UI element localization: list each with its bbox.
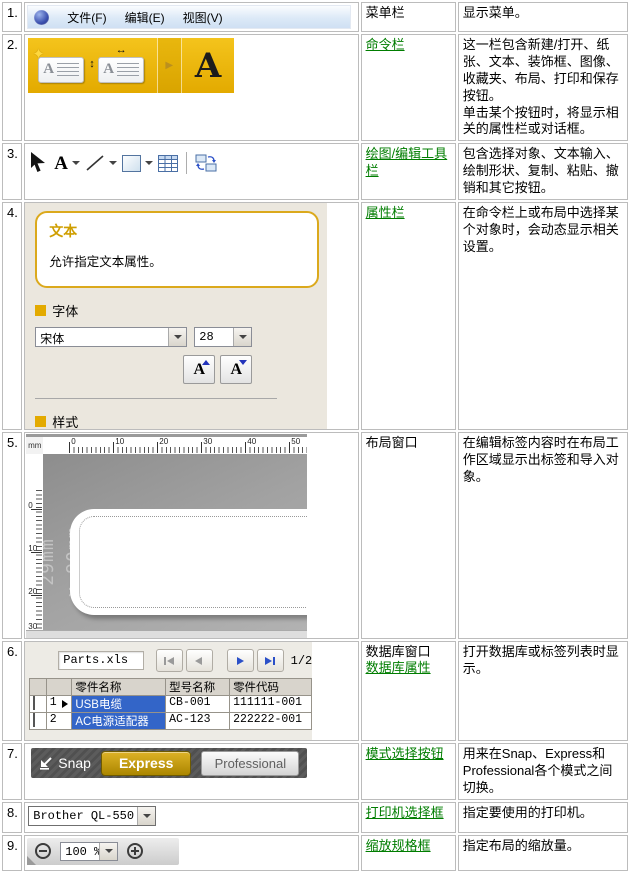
menu-file[interactable]: 文件(F) <box>67 9 106 26</box>
table-row: 8. Brother QL-550 打印机选择框 指定要使用的打印机。 <box>2 802 628 833</box>
style-section-label: 样式 <box>52 412 78 430</box>
record-row: 2 AC电源适配器 AC-123 222222-001 <box>30 713 312 730</box>
resize-grip-icon <box>27 856 36 865</box>
item-desc: 单击某个按钮时，将显示相关的属性栏或对话框。 <box>463 105 623 139</box>
line-tool-button[interactable] <box>85 154 117 172</box>
snap-mode-button[interactable]: Snap <box>39 755 91 771</box>
dropdown-arrow-icon <box>72 161 80 165</box>
table-row: 3. A <box>2 143 628 200</box>
dropdown-button[interactable] <box>233 328 251 346</box>
first-record-button[interactable] <box>156 649 183 672</box>
draw-edit-toolbar: A <box>27 148 355 178</box>
height-arrow-icon: ↕ <box>89 59 95 70</box>
scrollbar-strip[interactable] <box>26 630 307 638</box>
dropdown-arrow-icon <box>174 335 182 339</box>
professional-mode-button[interactable]: Professional <box>201 751 299 776</box>
column-header[interactable]: 型号名称 <box>166 679 230 696</box>
text-button[interactable]: A <box>182 38 234 93</box>
last-record-button[interactable] <box>257 649 284 672</box>
item-desc: 用来在Snap、Express和Professional各个模式之间切换。 <box>463 746 623 797</box>
record-model-cell[interactable]: AC-123 <box>166 713 230 730</box>
item-desc: 打开数据库或标签列表时显示。 <box>463 644 623 678</box>
zoom-in-button[interactable] <box>127 843 143 859</box>
width-arrow-icon: ↔ <box>100 45 142 56</box>
record-name-cell[interactable]: USB电缆 <box>72 696 166 713</box>
menu-view[interactable]: 视图(V) <box>183 9 223 26</box>
row-number: 1. <box>3 3 21 22</box>
table-icon <box>158 155 178 172</box>
print-margin-guide <box>79 516 307 608</box>
ruler-unit-box: mm <box>26 437 44 455</box>
down-triangle-icon <box>239 360 247 365</box>
current-record-icon <box>62 700 68 708</box>
item-desc: 显示菜单。 <box>463 5 623 22</box>
table-row: 9. 100 % 缩放规格框 指定布局的缩放量。 <box>2 835 628 871</box>
cursor-icon <box>27 151 49 175</box>
row-number: 2. <box>3 35 21 54</box>
express-mode-button[interactable]: Express <box>101 751 191 776</box>
record-code-cell[interactable]: 111111-001 <box>230 696 312 713</box>
table-row: 4. 文本 允许指定文本属性。 字体 宋体 28 <box>2 202 628 430</box>
table-tool-button[interactable] <box>158 155 178 172</box>
table-row: 7. Snap Express Professional 模式选择按钮 用来在S… <box>2 743 628 800</box>
item-desc: 指定布局的缩放量。 <box>463 838 623 855</box>
snap-arrow-icon <box>39 757 53 770</box>
decrease-font-button[interactable]: A <box>220 355 252 384</box>
next-record-icon <box>235 656 245 666</box>
row-number: 9. <box>3 836 21 855</box>
font-section-label: 字体 <box>52 301 78 320</box>
manual-table: 1. 文件(F) 编辑(E) 视图(V) 菜单栏 显示菜单。 2. A ✦ A … <box>0 0 630 873</box>
row-number: 5. <box>3 433 21 452</box>
property-panel: 文本 允许指定文本属性。 字体 宋体 28 A <box>25 203 327 429</box>
item-name-layoutwindow: 布局窗口 <box>366 435 418 450</box>
up-triangle-icon <box>202 360 210 365</box>
item-desc: 在命令栏上或布局中选择某个对象时，会动态显示相关设置。 <box>463 205 623 256</box>
record-checkbox[interactable] <box>33 696 35 711</box>
item-name-menubar: 菜单栏 <box>366 5 405 20</box>
select-tool-button[interactable] <box>27 151 49 175</box>
arrange-tool-button[interactable] <box>195 153 217 173</box>
record-name-cell[interactable]: AC电源适配器 <box>72 713 166 730</box>
item-desc: 在编辑标签内容时在布局工作区域显示出标签和导入对象。 <box>463 435 623 486</box>
new-document-button[interactable]: A ✦ <box>36 51 86 81</box>
row-number: 6. <box>3 642 21 661</box>
dropdown-arrow-icon <box>239 335 247 339</box>
font-size-select[interactable]: 28 <box>194 327 252 347</box>
section-bullet-icon <box>35 416 46 427</box>
table-row: 2. A ✦ A ↔ ↕ ▶ A 命令栏 <box>2 34 628 141</box>
section-divider <box>35 398 277 399</box>
zoom-level-select[interactable]: 100 % <box>60 842 118 861</box>
arrange-icon <box>195 153 217 173</box>
shape-tool-button[interactable] <box>122 155 153 172</box>
item-link-printerselect[interactable]: 打印机选择框 <box>366 805 444 820</box>
item-link-drawtoolbar[interactable]: 绘图/编辑工具栏 <box>366 146 448 177</box>
paper-size-button[interactable]: A ↔ ↕ <box>96 51 146 81</box>
text-tool-button[interactable]: A <box>54 154 80 173</box>
item-link-databaseproperty[interactable]: 数据库属性 <box>366 660 431 675</box>
dropdown-button[interactable] <box>99 843 117 860</box>
dropdown-arrow-icon <box>145 161 153 165</box>
tooltip-title: 文本 <box>49 221 305 241</box>
menu-bar: 文件(F) 编辑(E) 视图(V) <box>27 5 351 29</box>
item-desc: 包含选择对象、文本输入、绘制形状、复制、粘贴、撤销和其它按钮。 <box>463 146 623 197</box>
layout-canvas[interactable]: 29mm x 90mm <box>43 454 307 631</box>
rectangle-icon <box>122 155 141 172</box>
previous-record-icon <box>194 656 204 666</box>
font-name-select[interactable]: 宋体 <box>35 327 187 347</box>
menu-edit[interactable]: 编辑(E) <box>125 9 165 26</box>
increase-font-button[interactable]: A <box>183 355 215 384</box>
column-header[interactable]: 零件代码 <box>230 679 312 696</box>
text-property-tooltip: 文本 允许指定文本属性。 <box>35 211 319 288</box>
database-grid: 零件名称 型号名称 零件代码 1 USB电缆 CB-001 111111-001… <box>29 678 312 730</box>
mode-switcher: Snap Express Professional <box>31 748 307 778</box>
first-record-icon <box>163 656 175 666</box>
vertical-ruler: 0 10 20 30 <box>26 454 44 631</box>
row-number: 3. <box>3 144 21 163</box>
record-code-cell[interactable]: 222222-001 <box>230 713 312 730</box>
dropdown-button[interactable] <box>137 807 155 825</box>
row-number: 7. <box>3 744 21 763</box>
next-record-button[interactable] <box>227 649 254 672</box>
record-page-indicator: 1/2 <box>291 654 313 668</box>
line-icon <box>85 154 105 172</box>
record-checkbox[interactable] <box>33 713 35 728</box>
item-desc: 这一栏包含新建/打开、纸张、文本、装饰框、图像、收藏夹、布局、打印和保存按钮。 <box>463 37 623 105</box>
table-row: 5. mm 0 10 20 30 40 50 0 10 20 30 <box>2 432 628 639</box>
app-icon <box>34 10 49 25</box>
item-link-propertybar[interactable]: 属性栏 <box>366 205 405 220</box>
plus-icon <box>134 847 136 855</box>
item-link-zoomcontrol[interactable]: 缩放规格框 <box>366 838 431 853</box>
previous-record-button[interactable] <box>186 649 213 672</box>
dropdown-button[interactable] <box>168 328 186 346</box>
dropdown-arrow-icon <box>109 161 117 165</box>
horizontal-ruler: 0 10 20 30 40 50 <box>43 437 307 455</box>
database-filename-field[interactable]: Parts.xls <box>58 651 143 670</box>
label-tape[interactable] <box>70 509 307 615</box>
item-desc: 指定要使用的打印机。 <box>463 805 623 822</box>
record-row: 1 USB电缆 CB-001 111111-001 <box>30 696 312 713</box>
dropdown-arrow-icon <box>143 814 151 818</box>
column-header[interactable]: 零件名称 <box>72 679 166 696</box>
section-bullet-icon <box>35 305 46 316</box>
layout-window: mm 0 10 20 30 40 50 0 10 20 30 29mm x <box>26 434 307 638</box>
expand-arrow-button[interactable]: ▶ <box>158 38 181 93</box>
row-number: 8. <box>3 803 21 822</box>
right-caret-icon: ▶ <box>165 60 173 71</box>
zoom-out-button[interactable] <box>35 843 51 859</box>
zoom-control: 100 % <box>27 838 179 865</box>
record-model-cell[interactable]: CB-001 <box>166 696 230 713</box>
row-number: 4. <box>3 203 21 222</box>
table-row: 6. Parts.xls <box>2 641 628 741</box>
minus-icon <box>39 850 47 852</box>
dropdown-arrow-icon <box>105 849 113 853</box>
item-name-databasewindow: 数据库窗口 <box>366 644 451 660</box>
item-link-commandbar[interactable]: 命令栏 <box>366 37 405 52</box>
table-row: 1. 文件(F) 编辑(E) 视图(V) 菜单栏 显示菜单。 <box>2 2 628 32</box>
tooltip-body: 允许指定文本属性。 <box>49 251 305 270</box>
database-window: Parts.xls <box>25 642 312 740</box>
command-bar: A ✦ A ↔ ↕ ▶ A <box>28 38 234 93</box>
new-star-icon: ✦ <box>32 45 45 63</box>
printer-select[interactable]: Brother QL-550 <box>28 806 156 826</box>
item-link-modeswitcher[interactable]: 模式选择按钮 <box>366 746 444 761</box>
last-record-icon <box>264 656 276 666</box>
